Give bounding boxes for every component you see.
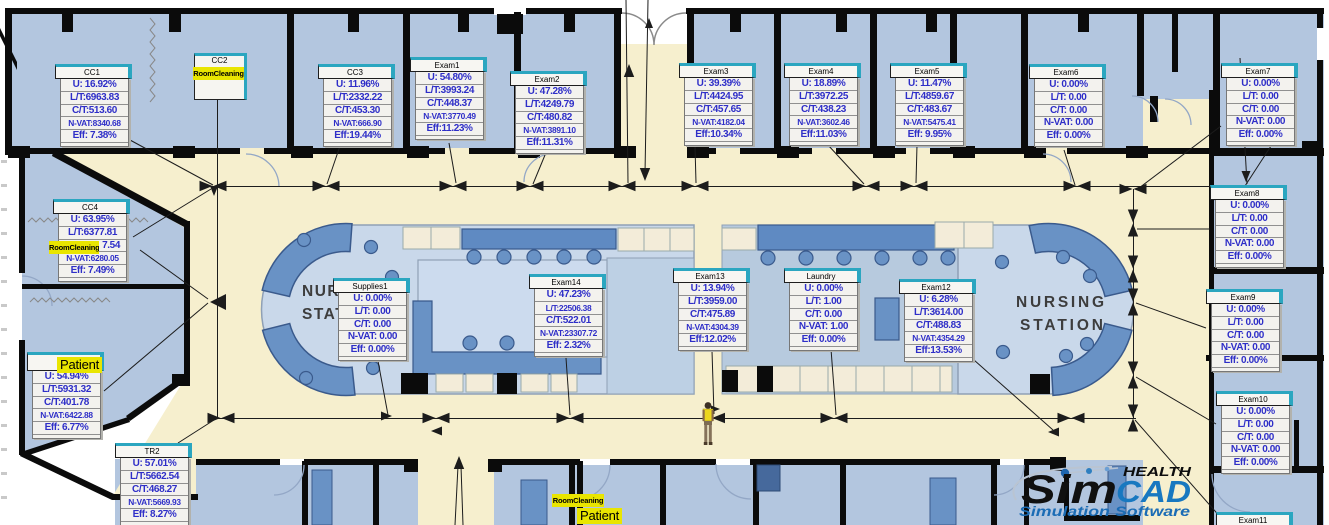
svg-text:Simulation Software: Simulation Software: [1019, 503, 1190, 519]
